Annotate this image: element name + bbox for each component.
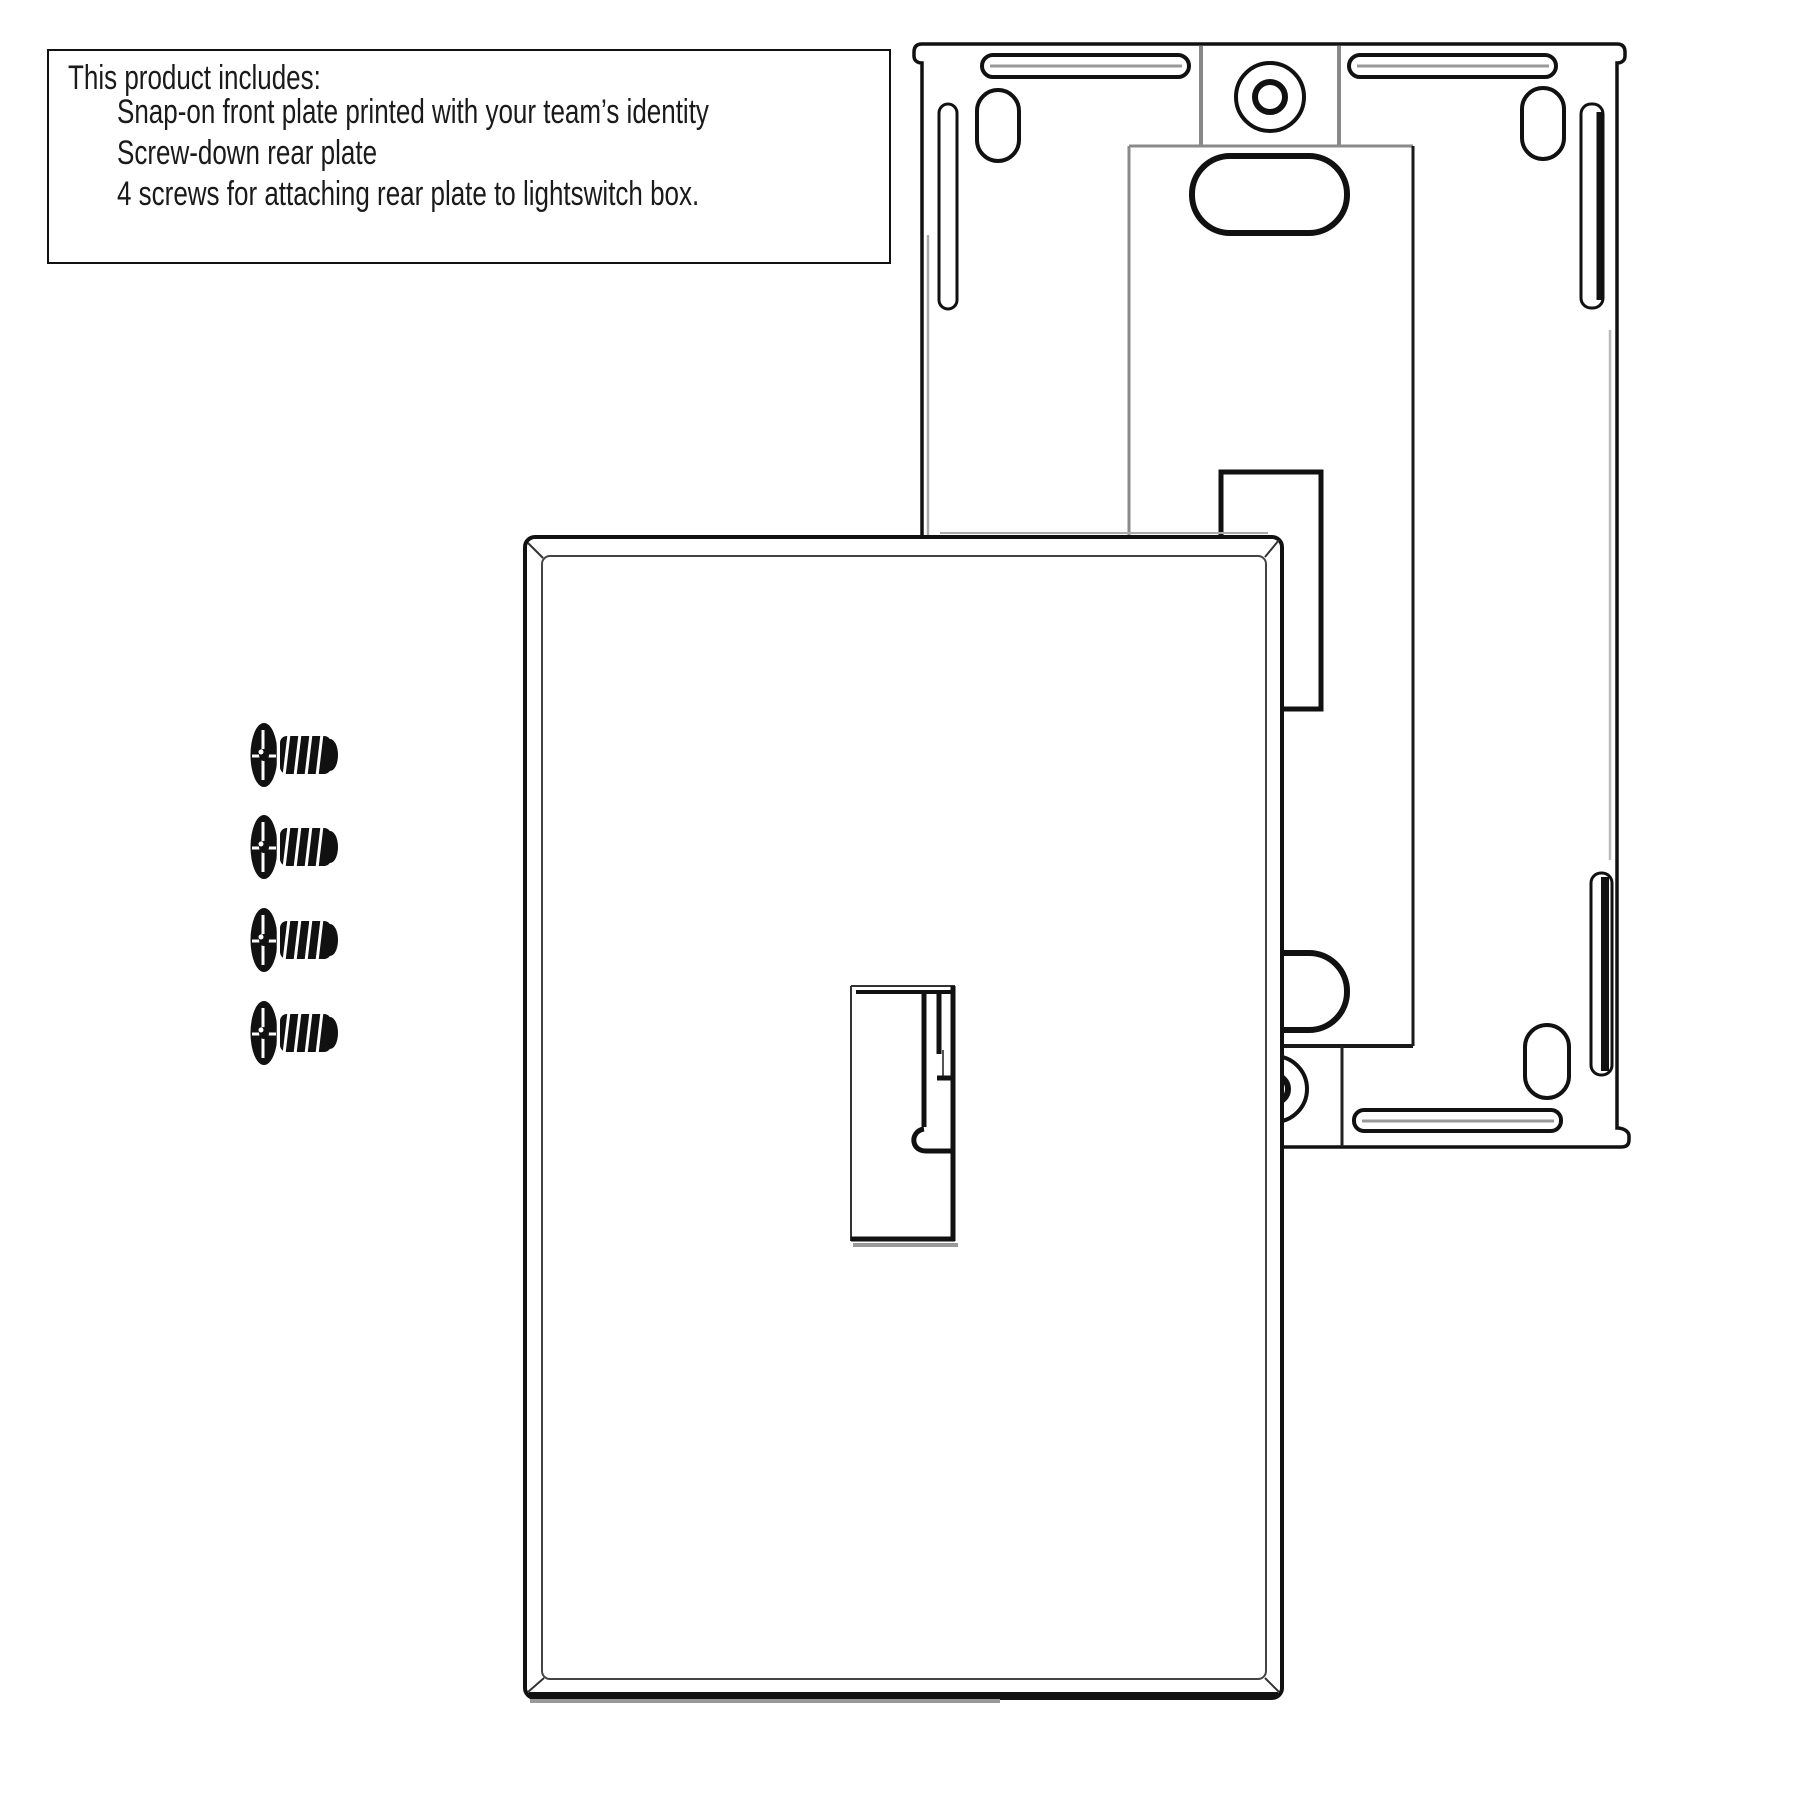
svg-text:This product includes:: This product includes: xyxy=(68,60,321,97)
svg-text:Screw-down rear plate: Screw-down rear plate xyxy=(117,135,377,172)
svg-text:4 screws for attaching rear pl: 4 screws for attaching rear plate to lig… xyxy=(117,176,699,213)
svg-text:Snap-on front plate printed wi: Snap-on front plate printed with your te… xyxy=(117,94,710,131)
